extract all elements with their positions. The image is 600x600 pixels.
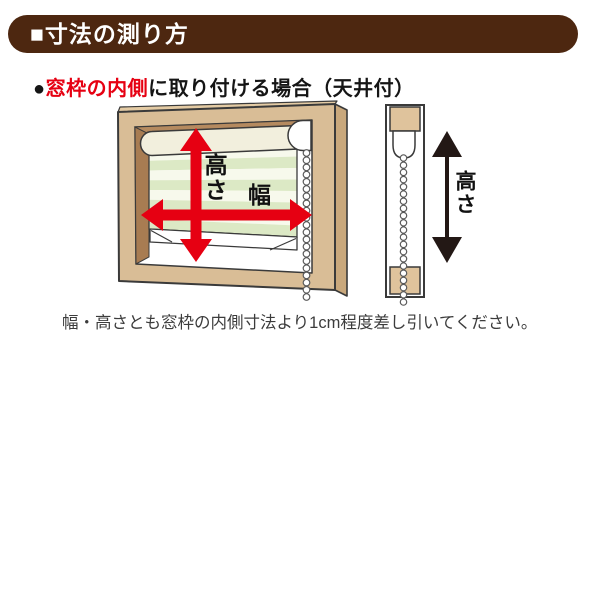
front-view-illustration [118,101,347,300]
note-text: 幅・高さとも窓枠の内側寸法より1cm程度差し引いてください。 [62,309,537,333]
side-height-label: 高さ [453,170,475,216]
front-width-label: 幅 [248,183,271,207]
front-height-label: 高さ [202,153,226,203]
roller-end-cap [288,121,311,151]
side-view-illustration [386,105,462,305]
side-roller [393,131,415,158]
side-top-block [390,107,420,131]
page: ■寸法の測り方 ●窓枠の内側に取り付ける場合（天井付） [0,0,600,600]
frame-side-face [335,104,347,296]
measurement-diagram [0,0,600,600]
bead-chain [303,150,310,301]
side-bead-chain [400,155,406,305]
